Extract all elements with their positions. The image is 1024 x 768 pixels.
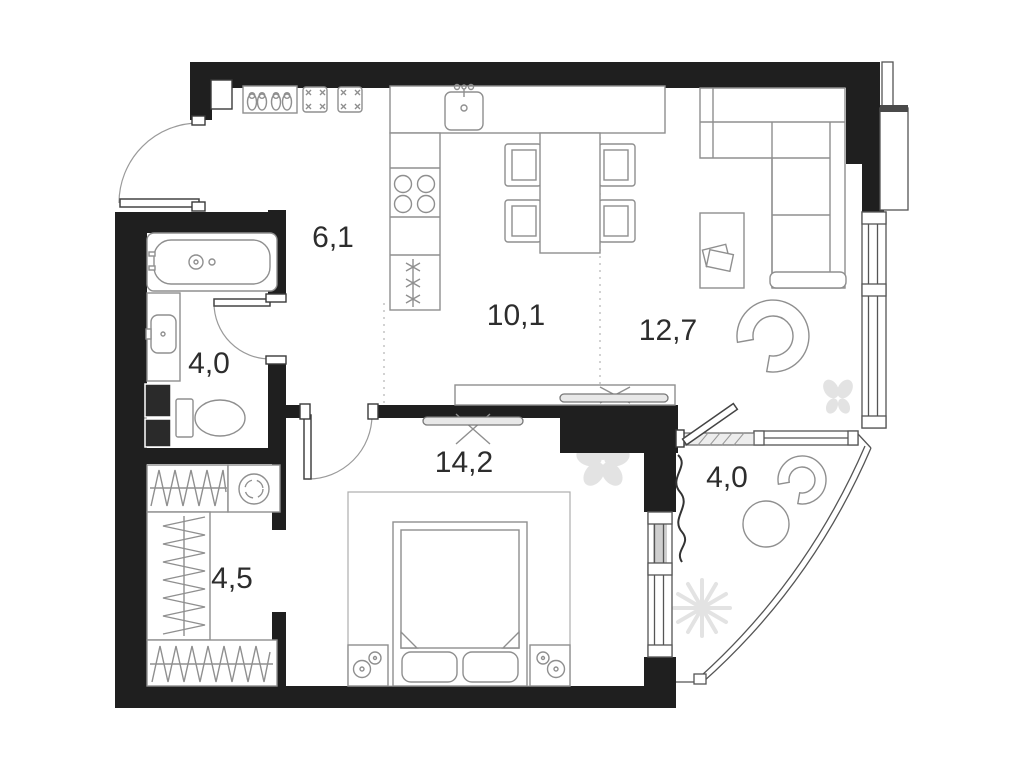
wall-break-squiggle	[676, 455, 685, 562]
utility-niche	[211, 80, 232, 109]
floorplan-drawing	[0, 0, 1024, 768]
bedroom-tv-icon	[423, 414, 523, 444]
tv-console-icon	[455, 385, 675, 405]
washbasin-icon	[146, 293, 180, 381]
exterior-ledge	[880, 62, 908, 210]
coffee-table-icon	[700, 213, 744, 288]
bedroom-window	[648, 512, 672, 657]
room-label-balcony: 4,0	[706, 461, 748, 495]
room-label-bathroom: 4,0	[188, 347, 230, 381]
bed-icon	[393, 522, 527, 686]
room-label-hallway: 6,1	[312, 221, 354, 255]
entrance-door	[119, 116, 205, 211]
dining-table-icon	[505, 133, 635, 253]
balcony-chair-icon	[778, 456, 826, 504]
lounge-chair-icon	[737, 300, 809, 372]
shoe-cabinet-icon	[243, 86, 297, 113]
room-label-kitchen: 10,1	[487, 299, 545, 333]
laundry-shaft-icon	[145, 384, 171, 447]
toilet-icon	[176, 399, 245, 437]
room-label-wardrobe: 4,5	[211, 562, 253, 596]
bathtub-icon	[147, 233, 277, 291]
balcony-table-icon	[743, 501, 789, 547]
butterfly-decor-icon	[820, 377, 856, 416]
room-label-living-room: 12,7	[639, 314, 697, 348]
room-label-bedroom: 14,2	[435, 446, 493, 480]
floorplan: 6,1 10,1 12,7 4,0 14,2 4,0 4,5	[0, 0, 1024, 768]
plant-decor-icon	[674, 580, 730, 636]
washing-machine-icon	[228, 465, 280, 512]
bedroom-door	[300, 404, 378, 479]
pouf-icon	[303, 87, 362, 112]
living-room-window	[862, 212, 886, 428]
